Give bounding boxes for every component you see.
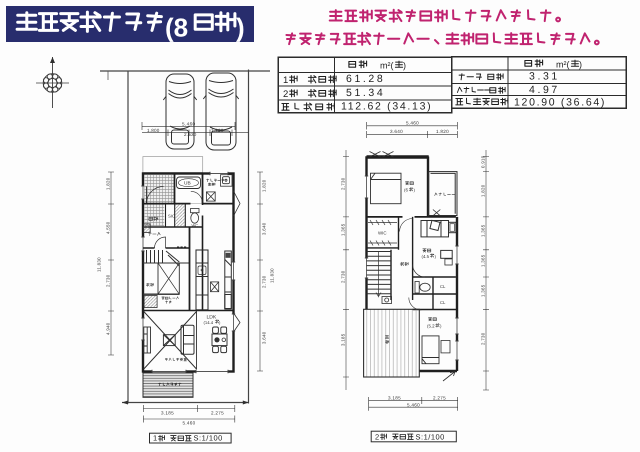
svg-text:1.820: 1.820 (481, 184, 486, 197)
svg-text:1.365: 1.365 (341, 223, 346, 236)
svg-text:WIC: WIC (378, 231, 387, 236)
svg-text:5.460: 5.460 (182, 121, 196, 126)
svg-text:1.820: 1.820 (106, 177, 111, 190)
svg-text:CL: CL (440, 284, 446, 289)
svg-text:1.365: 1.365 (481, 254, 486, 267)
svg-text:1.365: 1.365 (481, 224, 486, 237)
svg-text:3.640: 3.640 (262, 222, 267, 235)
svg-text:2.730: 2.730 (341, 177, 346, 190)
svg-text:2.730: 2.730 (481, 332, 486, 345)
svg-text:(4.5: (4.5 (422, 254, 430, 259)
svg-text:1.820: 1.820 (211, 128, 224, 133)
svg-text:5.460: 5.460 (406, 121, 419, 126)
svg-text:3.640: 3.640 (262, 331, 267, 344)
svg-text:5.460: 5.460 (407, 402, 420, 407)
svg-text:2.630: 2.630 (184, 132, 197, 137)
svg-text:1.365: 1.365 (481, 284, 486, 297)
svg-text:1.820: 1.820 (262, 179, 267, 192)
svg-text:(5.2: (5.2 (427, 324, 435, 329)
svg-text:0.910: 0.910 (481, 155, 486, 168)
svg-text:3.185: 3.185 (388, 396, 401, 401)
svg-text:4.940: 4.940 (106, 322, 111, 335)
svg-text:3.640: 3.640 (390, 129, 403, 134)
svg-text:3.185: 3.185 (161, 411, 174, 416)
svg-text:3.185: 3.185 (341, 333, 346, 346)
svg-text:2.730: 2.730 (262, 275, 267, 288)
svg-text:11.830: 11.830 (97, 257, 102, 272)
svg-text:): ) (440, 324, 442, 329)
svg-text:2.730: 2.730 (106, 274, 111, 287)
svg-text:): ) (414, 188, 416, 193)
svg-text:1.820: 1.820 (436, 129, 449, 134)
svg-text:2.275: 2.275 (433, 396, 446, 401)
svg-text:CL: CL (440, 300, 446, 305)
svg-text:5.460: 5.460 (183, 421, 196, 426)
svg-text:2: 2 (375, 433, 379, 442)
svg-text:(6: (6 (404, 188, 408, 193)
svg-text:4.550: 4.550 (106, 221, 111, 234)
svg-text:2.730: 2.730 (341, 270, 346, 283)
svg-text:WC: WC (192, 223, 199, 228)
svg-text:S:1/100: S:1/100 (194, 434, 223, 443)
svg-text:1.800: 1.800 (147, 128, 160, 133)
svg-text:11.830: 11.830 (270, 268, 275, 283)
svg-text:2.275: 2.275 (211, 411, 224, 416)
svg-text:(14.4: (14.4 (204, 320, 214, 325)
svg-text:UB: UB (184, 181, 191, 187)
svg-text:): ) (219, 320, 221, 325)
svg-text:1: 1 (153, 434, 157, 443)
svg-text:S:1/100: S:1/100 (416, 433, 445, 442)
svg-text:): ) (435, 254, 437, 259)
svg-text:SIC: SIC (168, 214, 175, 219)
